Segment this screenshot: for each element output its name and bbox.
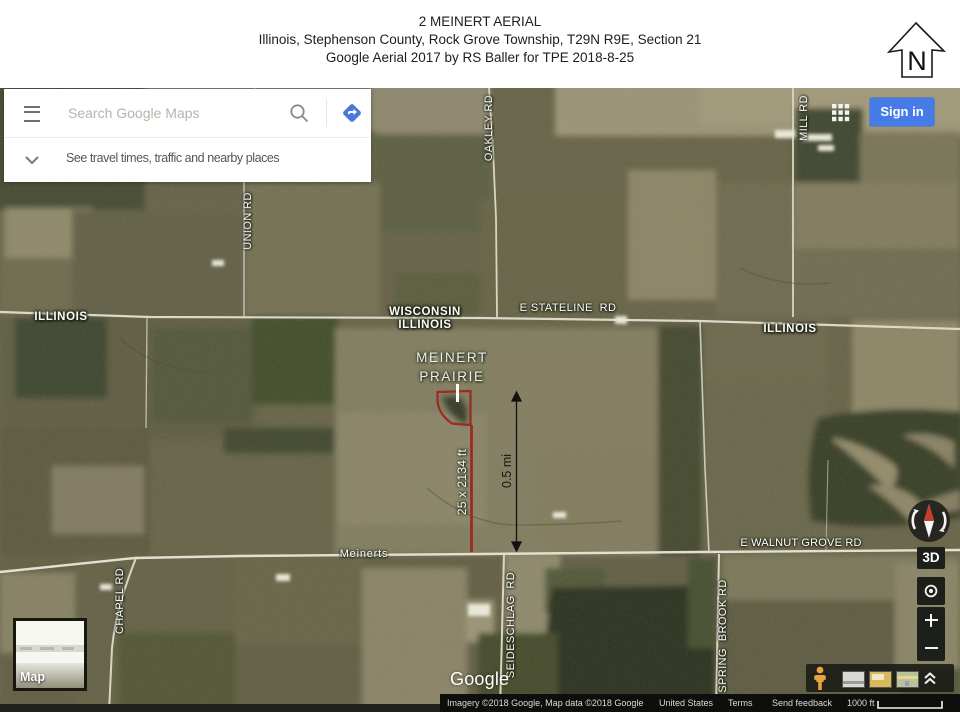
svg-text:N: N: [907, 46, 927, 76]
